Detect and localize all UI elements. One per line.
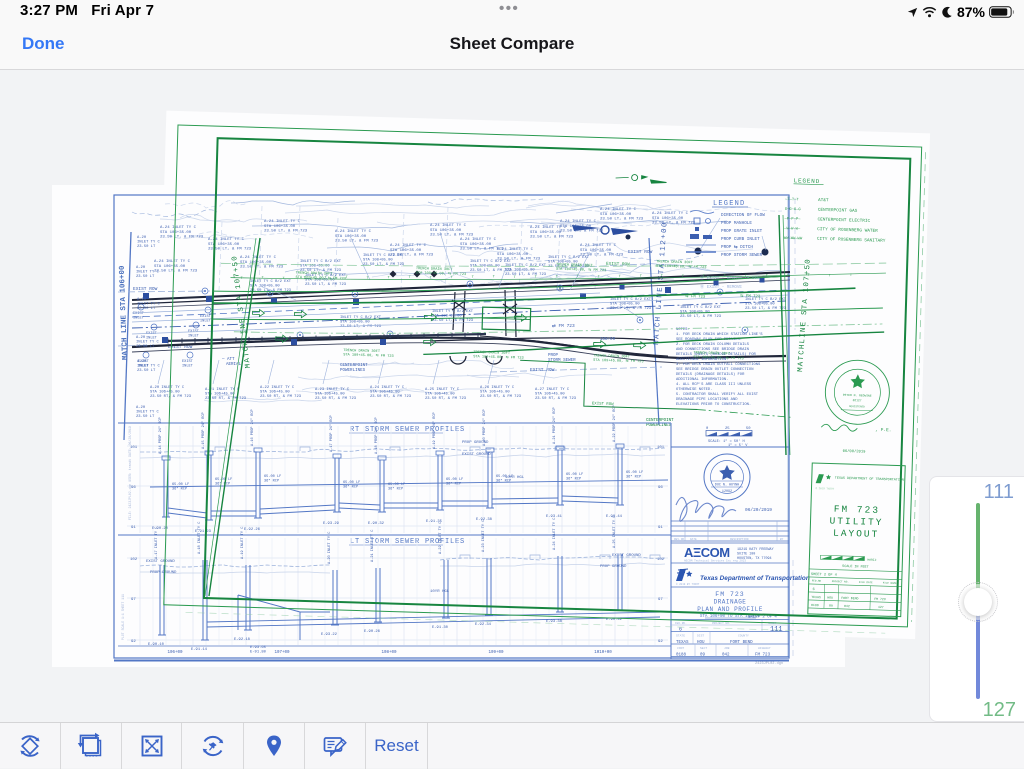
- svg-text:STA 106+35.00: STA 106+35.00: [460, 243, 492, 247]
- svg-text:STA 106+35.00: STA 106+35.00: [160, 231, 192, 235]
- svg-text:T: T: [640, 275, 642, 279]
- svg-text:STA 106+35.00: STA 106+35.00: [652, 217, 684, 221]
- svg-text:EXIST ROW: EXIST ROW: [530, 367, 555, 373]
- svg-text:STA 108+05.00: STA 108+05.00: [610, 303, 640, 307]
- svg-text:23.50 LT, & FM 723: 23.50 LT, & FM 723: [335, 240, 379, 244]
- svg-text:FM 723: FM 723: [834, 504, 881, 516]
- svg-text:T: T: [766, 275, 768, 279]
- svg-text:23.50 LT, & FM 723: 23.50 LT, & FM 723: [610, 307, 652, 311]
- svg-text:T: T: [387, 276, 389, 280]
- svg-text:AT&T: AT&T: [818, 198, 829, 203]
- svg-text:INLET: INLET: [200, 319, 212, 323]
- svg-text:10YR HGL: 10YR HGL: [430, 590, 450, 594]
- svg-text:23.50 RT, & FM 723: 23.50 RT, & FM 723: [315, 397, 357, 401]
- svg-text:107+00: 107+00: [274, 651, 290, 655]
- svg-text:T: T: [472, 276, 474, 280]
- svg-text:ELEVATIONS PRIOR TO CONSTRUCTI: ELEVATIONS PRIOR TO CONSTRUCTION.: [676, 403, 751, 407]
- svg-text:23.50 LT, & FM 723: 23.50 LT, & FM 723: [652, 222, 696, 226]
- svg-text:INLET TY C B/2 EXT: INLET TY C B/2 EXT: [432, 309, 474, 314]
- svg-text:T: T: [598, 276, 600, 280]
- svg-text:T: T: [409, 276, 411, 280]
- svg-text:PROP: PROP: [548, 354, 559, 358]
- svg-text:A-24 INLET TY C: A-24 INLET TY C: [560, 220, 597, 224]
- svg-text:BY: BY: [780, 538, 784, 541]
- svg-text:FED.RD.: FED.RD.: [675, 622, 687, 625]
- svg-text:STA 106+35.00: STA 106+35.00: [208, 243, 240, 247]
- svg-text:OTHERWISE NOTED.: OTHERWISE NOTED.: [676, 388, 712, 392]
- svg-text:STA 106+45.00: STA 106+45.00: [370, 391, 400, 395]
- svg-text:36" RCP: 36" RCP: [388, 487, 403, 492]
- svg-text:STA 106+45.00: STA 106+45.00: [260, 391, 290, 395]
- svg-text:0188: 0188: [811, 603, 819, 607]
- svg-text:DETAILS (DRAINAGE DETAILS) FOR: DETAILS (DRAINAGE DETAILS) FOR: [676, 372, 745, 377]
- svg-text:DIRECTION OF FLOW: DIRECTION OF FLOW: [721, 213, 765, 218]
- svg-text:23.50 LT, & FM 723: 23.50 LT, & FM 723: [470, 269, 512, 273]
- svg-text:STA 106+35.00: STA 106+35.00: [264, 225, 296, 229]
- svg-text:STA 108+05.00: STA 108+05.00: [363, 259, 393, 263]
- svg-text:PROJECT NO.: PROJECT NO.: [712, 622, 730, 625]
- svg-text:E-92.26: E-92.26: [244, 528, 261, 532]
- svg-text:PROP STORM SEWER: PROP STORM SEWER: [721, 253, 763, 258]
- svg-text:23.50 LT, & FM 723: 23.50 LT, & FM 723: [560, 230, 604, 234]
- svg-text:A-25 INLET TY C: A-25 INLET TY C: [613, 516, 617, 548]
- svg-text:POWERLINES: POWERLINES: [340, 369, 366, 373]
- svg-text:A-24 INLET TY C: A-24 INLET TY C: [335, 230, 372, 234]
- svg-text:2. FOR DECK DRAIN COLUMN DETAI: 2. FOR DECK DRAIN COLUMN DETAILS: [676, 343, 750, 347]
- svg-text:A-24 INLET TY C: A-24 INLET TY C: [652, 212, 689, 216]
- svg-text:STA 106+35.00: STA 106+35.00: [497, 253, 529, 257]
- svg-text:DESCRIPTION: DESCRIPTION: [730, 538, 749, 541]
- svg-text:65.00 LF: 65.00 LF: [343, 481, 360, 485]
- svg-text:042: 042: [844, 604, 850, 608]
- svg-text:A-27 INLET TY C: A-27 INLET TY C: [535, 388, 570, 392]
- svg-text:65.00 LF: 65.00 LF: [172, 483, 189, 487]
- svg-text:1010+00: 1010+00: [594, 651, 612, 655]
- svg-text:T: T: [829, 274, 831, 278]
- svg-text:T: T: [451, 276, 453, 280]
- svg-text:23.50 RT, & FM 723: 23.50 RT, & FM 723: [425, 397, 467, 401]
- svg-text:INLET TY C B/2 EXT: INLET TY C B/2 EXT: [363, 253, 405, 258]
- svg-text:PROP CURB INLET: PROP CURB INLET: [721, 237, 760, 242]
- svg-text:INLET TY C B/2 EXT: INLET TY C B/2 EXT: [505, 263, 547, 268]
- svg-text:TEXAS: TEXAS: [811, 595, 821, 599]
- svg-text:127: 127: [878, 605, 884, 609]
- svg-text:09: 09: [700, 654, 706, 658]
- svg-text:T: T: [514, 276, 516, 280]
- svg-text:A-23 INLET TY C: A-23 INLET TY C: [482, 520, 486, 552]
- svg-text:E-93.29: E-93.29: [323, 522, 340, 526]
- svg-text:91: 91: [131, 526, 136, 530]
- svg-text:PLOT SCALE 1:1 SHEET 111: PLOT SCALE 1:1 SHEET 111: [121, 594, 125, 640]
- svg-text:HORIZ: HORIZ: [867, 559, 876, 562]
- svg-text:G—G—G—G: G—G—G—G: [785, 208, 802, 212]
- svg-text:EXIST ROW: EXIST ROW: [628, 249, 653, 255]
- svg-text:A-18 INLET TY C: A-18 INLET TY C: [198, 522, 202, 554]
- svg-text:DATE: DATE: [690, 538, 697, 541]
- svg-text:A-24 INLET TY C: A-24 INLET TY C: [460, 238, 497, 242]
- svg-text:T: T: [429, 277, 431, 281]
- svg-text:23.50 LT, & FM 723: 23.50 LT, & FM 723: [680, 315, 722, 319]
- svg-text:1. FOR DECK DRAIN WHICH STATIO: 1. FOR DECK DRAIN WHICH STATION LINE'S: [676, 332, 763, 337]
- svg-text:© 2019 TXDOT: © 2019 TXDOT: [815, 486, 834, 491]
- svg-text:TEXAS: TEXAS: [676, 641, 689, 645]
- svg-text:INLET: INLET: [188, 334, 200, 338]
- svg-text:STA 106+45.00: STA 106+45.00: [535, 393, 565, 397]
- svg-text:A-20 INLET TY C: A-20 INLET TY C: [150, 386, 185, 390]
- svg-text:23.50 RT, & FM 723: 23.50 RT, & FM 723: [205, 397, 247, 401]
- svg-text:23.50 LT, & FM 723: 23.50 LT, & FM 723: [160, 236, 204, 240]
- svg-text:INLET TY C B/2 EXT: INLET TY C B/2 EXT: [300, 259, 342, 264]
- svg-text:LAYOUT: LAYOUT: [833, 528, 880, 540]
- svg-text:T: T: [682, 275, 684, 279]
- svg-text:SECT: SECT: [700, 647, 707, 650]
- svg-text:A-19 PROP 24" RCP: A-19 PROP 24" RCP: [432, 412, 437, 449]
- svg-text:AERIAL: AERIAL: [226, 363, 242, 367]
- svg-text:A-21 PROP 24" RCP: A-21 PROP 24" RCP: [552, 407, 557, 444]
- svg-text:36" RCP: 36" RCP: [264, 479, 279, 484]
- svg-text:HOU: HOU: [827, 595, 833, 599]
- svg-text:82127: 82127: [853, 399, 862, 402]
- svg-text:FED.RD: FED.RD: [812, 580, 822, 583]
- svg-text:T: T: [745, 275, 747, 279]
- svg-text:STA 106+45.00: STA 106+45.00: [315, 393, 345, 397]
- svg-text:A-24 INLET TY C: A-24 INLET TY C: [390, 244, 427, 248]
- svg-text:INLET TY C: INLET TY C: [136, 341, 160, 345]
- svg-text:—W—W—W—: —W—W—W—: [783, 227, 801, 232]
- svg-text:E-91.14: E-91.14: [191, 648, 208, 652]
- svg-text:65.00 LF: 65.00 LF: [446, 478, 463, 482]
- svg-text:T: T: [366, 277, 368, 281]
- svg-text:DUC N. HUYNH: DUC N. HUYNH: [715, 484, 739, 488]
- svg-text:23.50 LT, & FM 723: 23.50 LT, & FM 723: [264, 230, 308, 234]
- svg-text:T: T: [724, 274, 726, 278]
- svg-text:A-20 PROP 24" RCP: A-20 PROP 24" RCP: [482, 409, 487, 446]
- svg-text:65.00 LF: 65.00 LF: [496, 475, 513, 479]
- svg-text:EXIST: EXIST: [182, 360, 194, 364]
- svg-text:23.50 RT, & FM 723: 23.50 RT, & FM 723: [370, 395, 412, 399]
- svg-text:A-17 INLET TY C: A-17 INLET TY C: [155, 527, 159, 559]
- svg-text:STA 106+35.00: STA 106+35.00: [530, 231, 562, 235]
- svg-text:E-91.30: E-91.30: [432, 626, 449, 630]
- svg-text:INLET TY C: INLET TY C: [137, 303, 161, 307]
- svg-text:A-24 INLET TY C: A-24 INLET TY C: [553, 518, 557, 550]
- svg-text:PROP GROUND: PROP GROUND: [600, 565, 627, 569]
- svg-text:36" RCP: 36" RCP: [626, 475, 641, 480]
- svg-text:T: T: [787, 274, 789, 278]
- svg-text:STA 106+45.00: STA 106+45.00: [480, 391, 510, 395]
- svg-text:T: T: [282, 277, 284, 281]
- svg-text:A-24 INLET TY C: A-24 INLET TY C: [240, 256, 277, 260]
- svg-text:23.50 LT, & FM 723: 23.50 LT, & FM 723: [530, 236, 574, 240]
- svg-text:AECOM Technical Services Inc: AECOM Technical Services Inc reg 2023: [684, 559, 746, 563]
- svg-text:CENTERPOINT: CENTERPOINT: [646, 419, 674, 423]
- svg-text:23.50 LT: 23.50 LT: [137, 307, 156, 311]
- svg-text:23.50 LT: 23.50 LT: [137, 369, 156, 373]
- svg-text:© 2019 BY TXDOT: © 2019 BY TXDOT: [676, 582, 700, 586]
- svg-text:FM 723: FM 723: [715, 591, 744, 598]
- svg-text:INLET TY C: INLET TY C: [136, 411, 160, 415]
- svg-text:STATE: STATE: [676, 635, 685, 638]
- svg-text:A-20: A-20: [136, 406, 146, 410]
- svg-text:STA 106+35.00: STA 106+35.00: [154, 265, 186, 269]
- svg-text:EXIST ROW: EXIST ROW: [592, 402, 614, 407]
- svg-text:STA 106+35.00: STA 106+35.00: [580, 249, 612, 253]
- svg-text:23.50 LT, & FM 723: 23.50 LT, & FM 723: [460, 248, 504, 252]
- svg-text:23.50 LT, & FM 723: 23.50 LT, & FM 723: [305, 283, 347, 287]
- svg-text:DIST: DIST: [697, 635, 704, 638]
- svg-text:A-17 PROP 24" RCP: A-17 PROP 24" RCP: [329, 415, 334, 452]
- svg-text:, P.E.: , P.E.: [875, 427, 891, 433]
- svg-text:042: 042: [722, 654, 730, 658]
- svg-text:— ATT: — ATT: [221, 358, 235, 362]
- svg-text:A-20: A-20: [137, 360, 147, 364]
- svg-text:FORT BEND: FORT BEND: [730, 641, 753, 645]
- svg-text:A-20: A-20: [136, 266, 146, 270]
- svg-text:23.50 LT: 23.50 LT: [136, 275, 155, 279]
- svg-text:23.50 LT: 23.50 LT: [136, 415, 155, 419]
- svg-text:A-23 INLET TY C: A-23 INLET TY C: [315, 388, 350, 392]
- svg-text:36" RCP: 36" RCP: [496, 479, 511, 484]
- svg-text:12092: 12092: [722, 490, 732, 494]
- svg-text:A-20: A-20: [137, 298, 147, 302]
- svg-text:EXIST GROUND: EXIST GROUND: [146, 560, 175, 564]
- svg-text:91: 91: [658, 526, 663, 530]
- svg-text:36" RCP: 36" RCP: [172, 487, 187, 492]
- svg-text:STA 106+35.00: STA 106+35.00: [430, 229, 462, 233]
- svg-text:65.00 LF: 65.00 LF: [566, 473, 583, 477]
- svg-text:FILE: 2423JPL02.dgn USER: tra: FILE: 2423JPL02.dgn USER: trandt DATE: 0…: [128, 426, 132, 520]
- svg-text:EXIST ROW: EXIST ROW: [133, 286, 158, 292]
- svg-text:23.50 LT, & FM 723: 23.50 LT, & FM 723: [600, 218, 644, 222]
- svg-text:A-20: A-20: [137, 236, 147, 240]
- svg-text:A-20: A-20: [136, 336, 146, 340]
- svg-text:SUITE 100: SUITE 100: [737, 552, 755, 556]
- svg-text:23.50 RT, & FM 723: 23.50 RT, & FM 723: [480, 395, 522, 399]
- svg-text:STA 106+45.00: STA 106+45.00: [425, 393, 455, 397]
- svg-text:PROP GRATE INLET: PROP GRATE INLET: [721, 229, 763, 234]
- svg-text:65.00 LF: 65.00 LF: [626, 471, 643, 475]
- svg-text:T: T: [661, 274, 663, 278]
- svg-text:23.50 RT, & FM 723: 23.50 RT, & FM 723: [260, 395, 302, 399]
- svg-text:EXIST ROW: EXIST ROW: [606, 262, 630, 268]
- svg-text:A-14 PROP 24" RCP: A-14 PROP 24" RCP: [158, 417, 163, 454]
- svg-text:A-18 PROP 24" RCP: A-18 PROP 24" RCP: [374, 417, 379, 454]
- svg-text:PROP MANHOLE: PROP MANHOLE: [721, 221, 752, 226]
- svg-text:A-19 INLET TY C: A-19 INLET TY C: [241, 527, 245, 559]
- svg-text:A-24 INLET TY C: A-24 INLET TY C: [208, 238, 245, 242]
- svg-text:POWERLINES: POWERLINES: [646, 424, 672, 428]
- svg-text:DRAINAGE: DRAINAGE: [714, 599, 747, 606]
- svg-text:4. ALL RCP'S ARE CLASS III UNL: 4. ALL RCP'S ARE CLASS III UNLESS: [676, 382, 752, 387]
- svg-text:STA 106+35.00: STA 106+35.00: [390, 249, 422, 253]
- svg-text:A-22 PROP 24" RCP: A-22 PROP 24" RCP: [612, 405, 617, 442]
- svg-text:SHEET 2 OF 4: SHEET 2 OF 4: [748, 616, 777, 620]
- svg-text:23.50 RT, & FM 723: 23.50 RT, & FM 723: [150, 395, 192, 399]
- svg-text:HOU: HOU: [697, 641, 705, 645]
- svg-text:A-16 PROP 24" RCP: A-16 PROP 24" RCP: [250, 409, 255, 446]
- svg-text:REV.NO: REV.NO: [674, 538, 684, 541]
- svg-text:FILE DATE: FILE DATE: [859, 581, 874, 584]
- svg-text:E-93.65: E-93.65: [250, 646, 267, 650]
- svg-text:0188: 0188: [676, 654, 687, 658]
- svg-text:AΞCOM: AΞCOM: [684, 545, 730, 560]
- svg-text:T: T: [261, 277, 263, 281]
- svg-text:WW—WW—WW: WW—WW—WW: [784, 237, 803, 242]
- svg-text:97: 97: [658, 598, 663, 602]
- svg-text:19219 KATY FREEWAY: 19219 KATY FREEWAY: [737, 548, 774, 552]
- svg-text:HIGHWAY: HIGHWAY: [758, 647, 771, 650]
- svg-text:A-21 INLET TY C: A-21 INLET TY C: [371, 530, 375, 562]
- svg-text:E-93.22: E-93.22: [321, 633, 338, 637]
- svg-text:A-24 INLET TY C: A-24 INLET TY C: [430, 224, 467, 228]
- svg-text:STA 108+05.00: STA 108+05.00: [340, 321, 370, 325]
- svg-text:A-26 INLET TY C: A-26 INLET TY C: [480, 386, 515, 390]
- svg-text:EXIST GROUND: EXIST GROUND: [462, 453, 491, 457]
- svg-text:SEE BRIDGE DRAIN OUTLET CONNEC: SEE BRIDGE DRAIN OUTLET CONNECTION: [676, 368, 753, 372]
- svg-text:A-24 INLET TY C: A-24 INLET TY C: [580, 244, 617, 248]
- svg-text:CENTERPOINT: CENTERPOINT: [340, 364, 368, 368]
- svg-text:EXIST: EXIST: [146, 332, 158, 336]
- svg-text:T: T: [556, 275, 558, 279]
- svg-text:—T—T—T: —T—T—T: [784, 198, 800, 202]
- svg-text:INLET TY C B/2 EXT: INLET TY C B/2 EXT: [250, 279, 292, 284]
- svg-text:⇄ FM 723: ⇄ FM 723: [552, 323, 575, 329]
- svg-text:FM 723: FM 723: [755, 654, 771, 658]
- svg-text:E-91.80: E-91.80: [250, 651, 267, 655]
- svg-text:A-24 INLET TY C: A-24 INLET TY C: [370, 386, 405, 390]
- svg-text:109+00: 109+00: [488, 651, 504, 655]
- svg-text:23.50 LT, & FM 723: 23.50 LT, & FM 723: [430, 234, 474, 238]
- svg-text:A-20 INLET TY C: A-20 INLET TY C: [328, 532, 332, 564]
- svg-text:A-15 PROP 24" RCP: A-15 PROP 24" RCP: [201, 412, 206, 449]
- svg-text:65.00 LF: 65.00 LF: [388, 483, 405, 487]
- svg-text:92: 92: [131, 640, 136, 644]
- svg-text:FORT BEND: FORT BEND: [841, 596, 858, 601]
- svg-text:STA 108+05.00: STA 108+05.00: [745, 303, 775, 307]
- svg-text:97: 97: [131, 598, 136, 602]
- svg-text:36" RCP: 36" RCP: [215, 482, 230, 487]
- svg-text:INLET: INLET: [182, 364, 194, 368]
- svg-text:T: T: [850, 274, 852, 278]
- svg-text:SCALE IN FEET: SCALE IN FEET: [842, 565, 869, 570]
- svg-text:ADDITIONAL INFORMATION.: ADDITIONAL INFORMATION.: [676, 378, 728, 382]
- svg-text:INLET TY C: INLET TY C: [137, 365, 161, 369]
- svg-text:E-92.34: E-92.34: [475, 623, 492, 627]
- svg-text:6: 6: [812, 588, 814, 592]
- svg-text:INLET TY C B/2 EXT: INLET TY C B/2 EXT: [548, 255, 590, 260]
- svg-text:INLET TY C B/2 EXT: INLET TY C B/2 EXT: [680, 305, 722, 310]
- svg-text:06/20/2019: 06/20/2019: [745, 507, 772, 513]
- svg-text:REGISTERED: REGISTERED: [849, 405, 865, 408]
- svg-text:T: T: [493, 275, 495, 279]
- svg-text:23.50 RT, & FM 723: 23.50 RT, & FM 723: [535, 397, 577, 401]
- svg-text:PROJECT NO.: PROJECT NO.: [832, 580, 849, 584]
- svg-text:EXIST: EXIST: [200, 315, 212, 319]
- svg-text:INLET TY C: INLET TY C: [137, 241, 161, 245]
- svg-text:T: T: [619, 275, 621, 279]
- svg-text:UTILITY: UTILITY: [829, 516, 883, 529]
- svg-text:E-90.10: E-90.10: [148, 643, 165, 647]
- svg-text:65.00 LF: 65.00 LF: [264, 475, 281, 479]
- svg-text:CONT: CONT: [677, 647, 684, 650]
- svg-text:INLET TY C B/2 EXT: INLET TY C B/2 EXT: [470, 259, 512, 264]
- svg-text:A-22 INLET TY C: A-22 INLET TY C: [260, 386, 295, 390]
- svg-text:A-24 INLET TY C: A-24 INLET TY C: [264, 220, 301, 224]
- svg-text:102: 102: [130, 558, 138, 562]
- svg-text:36" RCP: 36" RCP: [446, 482, 461, 487]
- svg-text:DRAINAGE PIPE LOCATIONS AND: DRAINAGE PIPE LOCATIONS AND: [676, 398, 738, 402]
- svg-text:E-92.18: E-92.18: [234, 638, 251, 642]
- svg-text:—P—P—P—: —P—P—P—: [783, 217, 801, 222]
- svg-text:STA 106+45.00: STA 106+45.00: [150, 391, 180, 395]
- svg-text:PROP ⇆ DITCH: PROP ⇆ DITCH: [721, 244, 753, 250]
- svg-text:JOB: JOB: [724, 647, 730, 650]
- svg-text:36" RCP: 36" RCP: [566, 477, 581, 482]
- svg-text:T: T: [703, 275, 705, 279]
- svg-text:23.50 LT: 23.50 LT: [136, 345, 155, 349]
- svg-text:A-24 INLET TY C: A-24 INLET TY C: [154, 260, 191, 264]
- svg-text:T: T: [535, 276, 537, 280]
- svg-text:E-90.32: E-90.32: [368, 522, 385, 526]
- svg-text:36" RCP: 36" RCP: [343, 485, 358, 490]
- svg-text:09: 09: [829, 604, 833, 608]
- svg-text:106+00: 106+00: [167, 651, 183, 655]
- svg-text:2423JPL02.dgn: 2423JPL02.dgn: [755, 661, 783, 666]
- svg-text:108+00: 108+00: [381, 651, 397, 655]
- svg-text:STA 106+35.00: STA 106+35.00: [600, 213, 632, 217]
- svg-text:E-90.26: E-90.26: [364, 630, 381, 634]
- svg-text:FILE NAME: FILE NAME: [883, 582, 898, 585]
- svg-text:96: 96: [658, 486, 663, 490]
- svg-text:5. CONTRACTOR SHALL VERIFY ALL: 5. CONTRACTOR SHALL VERIFY ALL EXIST: [676, 393, 759, 397]
- svg-text:T: T: [577, 275, 579, 279]
- svg-text:A-22 INLET TY C: A-22 INLET TY C: [439, 522, 443, 554]
- svg-text:A-24 INLET TY C: A-24 INLET TY C: [600, 208, 637, 212]
- svg-text:STA 106+35.00: STA 106+35.00: [560, 225, 592, 229]
- svg-text:23.50 LT, & FM 723: 23.50 LT, & FM 723: [240, 266, 284, 270]
- svg-text:COUNTY: COUNTY: [738, 635, 749, 638]
- svg-text:EXIST GROUND: EXIST GROUND: [612, 554, 641, 558]
- svg-text:INLET TY C B/2 EXT: INLET TY C B/2 EXT: [610, 297, 652, 302]
- svg-text:92: 92: [658, 640, 663, 644]
- svg-text:A-25 INLET TY C: A-25 INLET TY C: [425, 388, 460, 392]
- svg-text:INLET TY C: INLET TY C: [136, 271, 160, 275]
- svg-text:23.50 LT, & FM 723: 23.50 LT, & FM 723: [154, 270, 198, 274]
- svg-text:FM 723: FM 723: [874, 597, 886, 601]
- svg-text:23.50 LT: 23.50 LT: [137, 245, 156, 249]
- svg-text:3. FOR DECK DRAIN OUTFALL CONN: 3. FOR DECK DRAIN OUTFALL CONNECTIONS: [676, 363, 761, 367]
- svg-text:65.00 LF: 65.00 LF: [215, 478, 232, 482]
- svg-text:23.50 LT, & FM 723: 23.50 LT, & FM 723: [505, 273, 547, 277]
- svg-text:06/08/2019: 06/08/2019: [843, 449, 867, 455]
- svg-text:A-24 INLET TY C: A-24 INLET TY C: [160, 226, 197, 230]
